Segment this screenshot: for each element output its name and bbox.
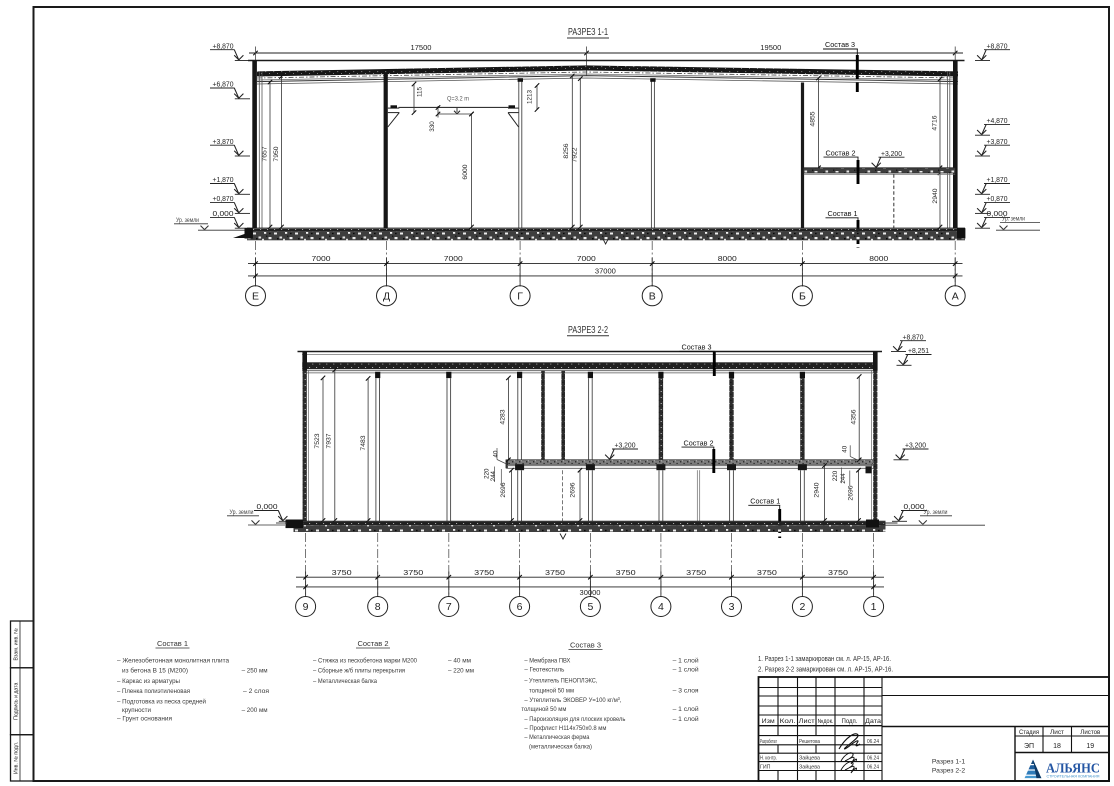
svg-text:Состав 3: Состав 3 bbox=[682, 345, 712, 352]
svg-text:Листов: Листов bbox=[1080, 729, 1101, 736]
svg-text:7: 7 bbox=[446, 601, 452, 613]
svg-text:6000: 6000 bbox=[462, 164, 469, 179]
svg-text:Состав 1: Состав 1 bbox=[157, 639, 188, 648]
svg-text:Б: Б bbox=[799, 290, 806, 302]
svg-text:1. Разрез 1-1 замаркирован см.: 1. Разрез 1-1 замаркирован см. л. АР-15,… bbox=[758, 656, 891, 663]
svg-text:Зайцева: Зайцева bbox=[799, 754, 820, 761]
svg-text:+0,870: +0,870 bbox=[213, 196, 234, 203]
svg-text:– Подготовка из песка средней: – Подготовка из песка средней bbox=[117, 697, 206, 705]
svg-text:244: 244 bbox=[490, 470, 497, 481]
svg-text:– 2 слоя: – 2 слоя bbox=[243, 688, 269, 695]
svg-text:РАЗРЕЗ 1-1: РАЗРЕЗ 1-1 bbox=[568, 26, 608, 38]
svg-text:Разрез 1-1: Разрез 1-1 bbox=[932, 758, 966, 765]
svg-text:Кол.: Кол. bbox=[780, 719, 796, 725]
svg-text:220: 220 bbox=[832, 470, 839, 481]
svg-text:7483: 7483 bbox=[360, 435, 367, 450]
svg-text:Взам. инв. №: Взам. инв. № bbox=[14, 628, 20, 661]
svg-text:4283: 4283 bbox=[500, 409, 507, 424]
svg-text:+4,870: +4,870 bbox=[987, 118, 1008, 125]
svg-text:Состав 3: Состав 3 bbox=[825, 42, 855, 49]
svg-text:Ур. земли: Ур. земли bbox=[176, 218, 199, 224]
svg-text:– Каркас из арматуры: – Каркас из арматуры bbox=[117, 678, 180, 685]
svg-text:крупности: крупности bbox=[122, 707, 151, 714]
svg-text:№док.: №док. bbox=[818, 718, 834, 725]
svg-text:– Утеплитель ПЕНОПЛЭКС,: – Утеплитель ПЕНОПЛЭКС, bbox=[524, 678, 597, 685]
svg-text:18: 18 bbox=[1053, 743, 1061, 750]
svg-text:2: 2 bbox=[799, 601, 805, 613]
svg-text:3750: 3750 bbox=[474, 568, 494, 577]
svg-text:– Металлическая балка: – Металлическая балка bbox=[313, 677, 377, 685]
svg-text:5: 5 bbox=[587, 601, 593, 613]
svg-text:19500: 19500 bbox=[760, 43, 781, 52]
svg-text:– 1 слой: – 1 слой bbox=[673, 715, 699, 723]
svg-text:– Пленка полиэтиленовая: – Пленка полиэтиленовая bbox=[117, 688, 190, 695]
svg-text:– 200 мм: – 200 мм bbox=[242, 707, 268, 714]
svg-text:6: 6 bbox=[517, 601, 523, 613]
svg-text:Решетова: Решетова bbox=[799, 739, 820, 745]
svg-text:3750: 3750 bbox=[757, 568, 777, 577]
svg-text:244: 244 bbox=[840, 473, 847, 484]
svg-text:– 3 слоя: – 3 слоя bbox=[673, 688, 699, 695]
svg-text:7922: 7922 bbox=[571, 147, 578, 162]
svg-text:А: А bbox=[952, 290, 959, 302]
svg-text:Н. контр.: Н. контр. bbox=[760, 755, 777, 761]
svg-text:толщиной 50 мм: толщиной 50 мм bbox=[521, 705, 566, 713]
svg-text:8000: 8000 bbox=[718, 254, 737, 263]
svg-text:19: 19 bbox=[1086, 743, 1094, 750]
svg-text:7523: 7523 bbox=[314, 433, 321, 448]
svg-text:Инв. № подл.: Инв. № подл. bbox=[14, 742, 20, 774]
svg-text:РАЗРЕЗ 2-2: РАЗРЕЗ 2-2 bbox=[568, 324, 608, 336]
svg-text:Состав 2: Состав 2 bbox=[684, 440, 714, 447]
svg-text:ЭП: ЭП bbox=[1024, 743, 1034, 750]
svg-text:Лист: Лист bbox=[799, 719, 815, 725]
svg-text:3750: 3750 bbox=[616, 568, 636, 577]
svg-text:– Грунт основания: – Грунт основания bbox=[117, 715, 172, 722]
svg-text:Д: Д bbox=[383, 290, 390, 302]
svg-text:1213: 1213 bbox=[526, 90, 533, 105]
svg-text:4356: 4356 bbox=[851, 409, 858, 424]
svg-text:– 40 мм: – 40 мм bbox=[448, 657, 471, 664]
svg-text:4: 4 bbox=[658, 601, 664, 613]
svg-text:Подп.: Подп. bbox=[842, 719, 858, 725]
svg-text:Лист: Лист bbox=[1050, 729, 1064, 736]
svg-text:3: 3 bbox=[729, 601, 735, 613]
svg-text:толщиной 50 мм: толщиной 50 мм bbox=[529, 687, 574, 695]
svg-text:2696: 2696 bbox=[569, 482, 576, 497]
svg-text:8000: 8000 bbox=[869, 254, 888, 263]
svg-text:ГИП: ГИП bbox=[760, 764, 771, 770]
svg-text:– Профлист Н114х750х0.8 мм: – Профлист Н114х750х0.8 мм bbox=[524, 725, 606, 732]
svg-text:– 1 слой: – 1 слой bbox=[673, 666, 699, 674]
svg-text:– Утеплитель ЭКОВЕР У=100 кг/м: – Утеплитель ЭКОВЕР У=100 кг/м³, bbox=[524, 697, 621, 704]
svg-text:Разрез 2-2: Разрез 2-2 bbox=[932, 768, 966, 775]
svg-text:– Мембрана ПВХ: – Мембрана ПВХ bbox=[524, 656, 570, 664]
svg-text:17500: 17500 bbox=[411, 43, 432, 52]
svg-text:– 1 слой: – 1 слой bbox=[673, 705, 699, 713]
svg-text:4855: 4855 bbox=[810, 111, 817, 126]
svg-text:В: В bbox=[649, 290, 656, 302]
svg-text:– Сборные ж/б плиты перекрытия: – Сборные ж/б плиты перекрытия bbox=[313, 667, 405, 675]
svg-text:– Пароизоляция для плоских кро: – Пароизоляция для плоских кровель bbox=[524, 716, 625, 723]
svg-text:8256: 8256 bbox=[563, 143, 570, 158]
svg-text:из бетона В 15 (М200): из бетона В 15 (М200) bbox=[122, 667, 188, 675]
svg-text:06.24: 06.24 bbox=[867, 764, 879, 770]
svg-text:Разработал: Разработал bbox=[760, 739, 777, 745]
svg-text:2696: 2696 bbox=[848, 485, 855, 500]
svg-text:9: 9 bbox=[303, 601, 309, 613]
svg-text:7657: 7657 bbox=[261, 146, 268, 161]
svg-text:40: 40 bbox=[493, 450, 500, 457]
svg-text:Ур. земли: Ур. земли bbox=[924, 510, 948, 516]
svg-text:3750: 3750 bbox=[828, 568, 848, 577]
svg-text:30000: 30000 bbox=[580, 588, 601, 597]
svg-text:– Железобетонная монолитная п: – Железобетонная монолитная плита bbox=[117, 656, 229, 664]
svg-text:(металлическая балка): (металлическая балка) bbox=[529, 743, 592, 751]
svg-text:06.24: 06.24 bbox=[867, 739, 879, 745]
svg-text:2940: 2940 bbox=[932, 188, 939, 203]
svg-text:8: 8 bbox=[375, 601, 381, 613]
svg-text:7950: 7950 bbox=[273, 146, 280, 161]
svg-text:Стадия: Стадия bbox=[1019, 729, 1039, 736]
svg-text:+6,870: +6,870 bbox=[213, 82, 234, 89]
svg-text:3750: 3750 bbox=[545, 568, 565, 577]
svg-text:Ур. земли: Ур. земли bbox=[1002, 217, 1025, 223]
svg-text:– Стяжка из пескобетона марки: – Стяжка из пескобетона марки М200 bbox=[313, 656, 417, 664]
svg-text:Г: Г bbox=[517, 290, 523, 302]
svg-text:4716: 4716 bbox=[932, 115, 939, 130]
svg-text:– 220 мм: – 220 мм bbox=[448, 668, 474, 675]
svg-text:2696: 2696 bbox=[500, 482, 507, 497]
svg-text:– Металлическая ферма: – Металлическая ферма bbox=[524, 734, 589, 741]
svg-text:1: 1 bbox=[871, 601, 877, 613]
svg-text:Состав 2: Состав 2 bbox=[358, 639, 389, 648]
svg-text:Изм: Изм bbox=[762, 719, 775, 725]
svg-text:Подпись и дата: Подпись и дата bbox=[14, 682, 20, 719]
svg-text:330: 330 bbox=[429, 121, 436, 132]
svg-text:7000: 7000 bbox=[312, 254, 331, 263]
svg-text:115: 115 bbox=[417, 86, 424, 97]
svg-text:3750: 3750 bbox=[403, 568, 423, 577]
svg-text:Дата: Дата bbox=[865, 719, 882, 725]
svg-text:40: 40 bbox=[841, 445, 848, 452]
svg-text:АЛЬЯНС: АЛЬЯНС bbox=[1046, 761, 1100, 776]
svg-text:3750: 3750 bbox=[332, 568, 352, 577]
svg-text:Q=3.2 m: Q=3.2 m bbox=[447, 96, 469, 103]
svg-text:Состав 2: Состав 2 bbox=[826, 150, 856, 157]
svg-text:3750: 3750 bbox=[686, 568, 706, 577]
svg-text:2940: 2940 bbox=[814, 482, 821, 497]
svg-text:Ур. земли: Ур. земли bbox=[230, 510, 254, 516]
svg-text:– 1 слой: – 1 слой bbox=[673, 656, 699, 664]
svg-text:2. Разрез 2-2 замаркирован см.: 2. Разрез 2-2 замаркирован см. л. АР-15,… bbox=[758, 667, 893, 674]
svg-text:Состав 3: Состав 3 bbox=[570, 641, 601, 650]
svg-text:Состав 1: Состав 1 bbox=[828, 211, 858, 218]
svg-text:37000: 37000 bbox=[595, 266, 616, 275]
svg-text:06.24: 06.24 bbox=[867, 755, 879, 761]
svg-text:Зайцева: Зайцева bbox=[799, 763, 820, 770]
svg-text:7000: 7000 bbox=[577, 254, 596, 263]
svg-text:7000: 7000 bbox=[444, 254, 463, 263]
svg-text:Состав 1: Состав 1 bbox=[750, 499, 780, 506]
svg-text:+0,870: +0,870 bbox=[987, 196, 1008, 203]
svg-text:– Геотекстиль: – Геотекстиль bbox=[524, 667, 564, 674]
svg-text:Е: Е bbox=[252, 290, 259, 302]
svg-text:– 250 мм: – 250 мм bbox=[242, 668, 268, 675]
svg-text:7937: 7937 bbox=[325, 433, 332, 448]
svg-text:СТРОИТЕЛЬНАЯ КОМПАНИЯ: СТРОИТЕЛЬНАЯ КОМПАНИЯ bbox=[1047, 774, 1101, 778]
